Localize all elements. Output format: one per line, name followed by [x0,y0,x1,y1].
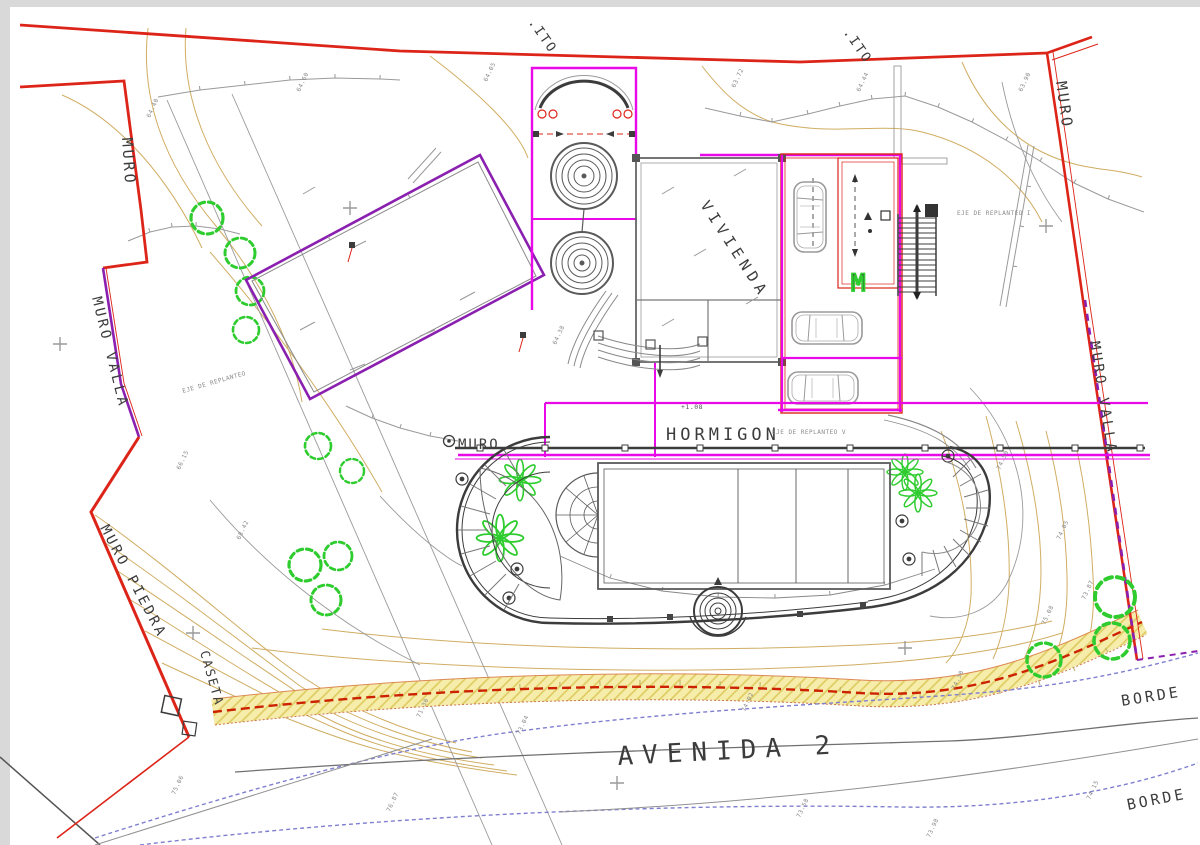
label-hormigon: HORMIGON [666,425,780,445]
window-edge-left [0,0,10,845]
site-plan-canvas: MURO MURO VALLA MURO PIEDRA CASETA .ITO … [0,0,1200,845]
garage-m-mark: M [851,269,865,297]
site-plan-viewer: MURO MURO VALLA MURO PIEDRA CASETA .ITO … [0,0,1200,845]
window-edge-top [0,0,1200,7]
label-muro-top-left: MURO [118,137,139,186]
label-eje-replanteo-v: EJE DE REPLANTEO V [772,429,846,436]
label-eje-replanteo-i: EJE DE REPLANTEO I [957,210,1031,217]
label-level-mark: +1.08 [681,403,703,411]
label-muro-hormigon: MURO [458,437,500,453]
